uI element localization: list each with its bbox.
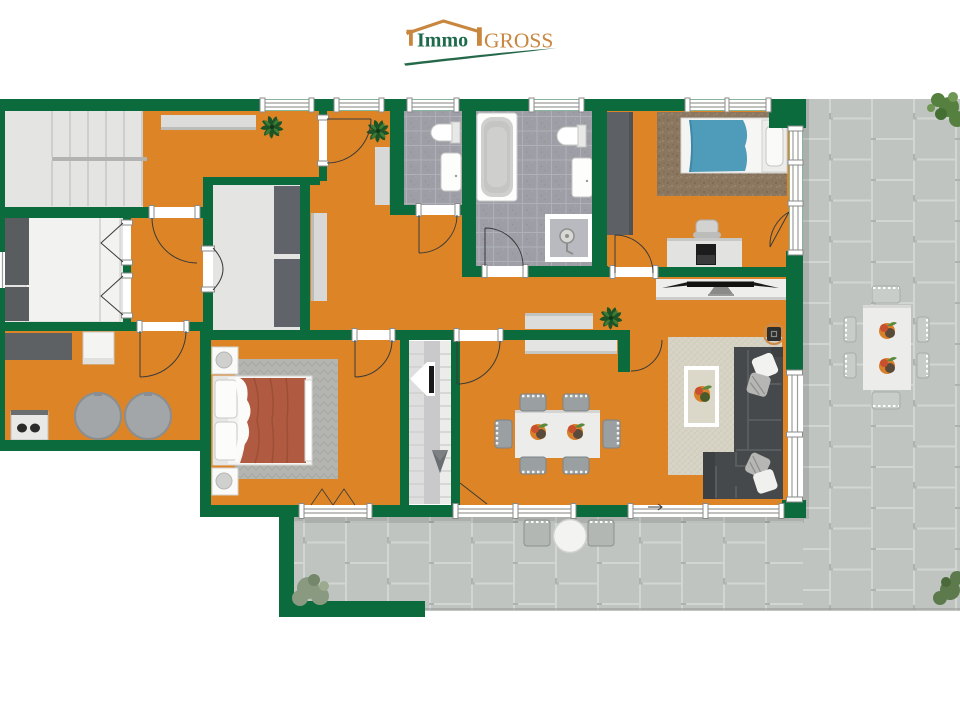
svg-text:Immo: Immo: [417, 30, 468, 52]
svg-text:GROSS: GROSS: [484, 29, 553, 53]
